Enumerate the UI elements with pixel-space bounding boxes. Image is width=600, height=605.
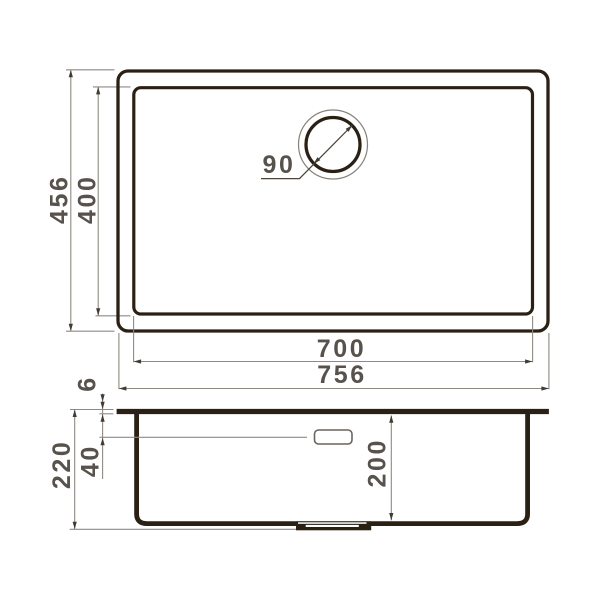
svg-text:400: 400 [73,174,101,224]
svg-text:756: 756 [317,361,367,389]
svg-text:700: 700 [317,335,367,363]
svg-text:456: 456 [46,174,74,224]
svg-text:6: 6 [74,375,102,392]
svg-text:40: 40 [77,444,105,477]
svg-text:200: 200 [363,438,391,488]
svg-text:90: 90 [262,151,295,179]
svg-text:220: 220 [48,440,76,490]
